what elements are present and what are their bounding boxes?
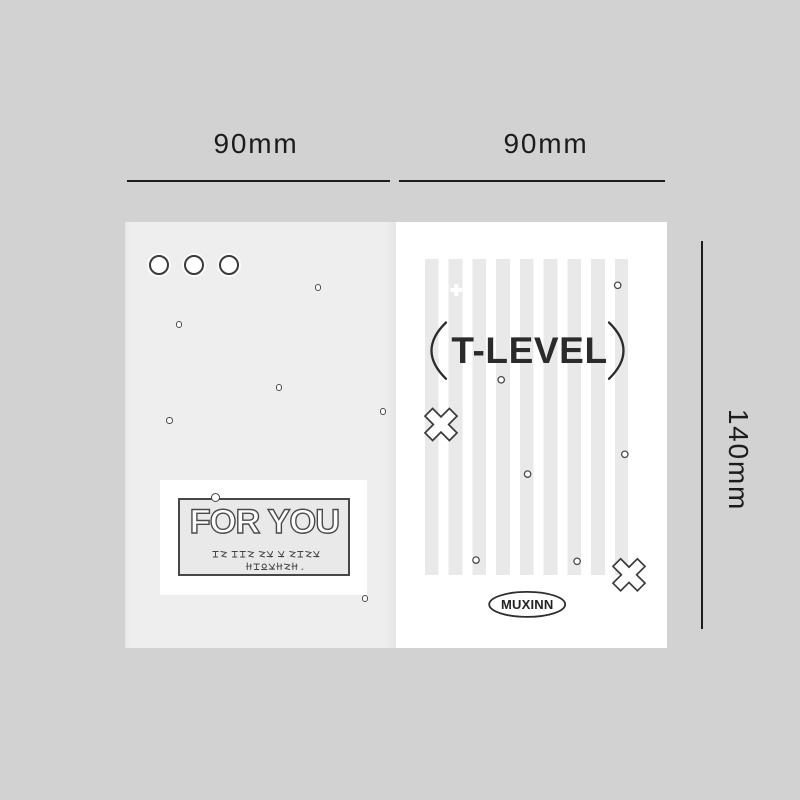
svg-text:MUXINN: MUXINN: [501, 597, 553, 612]
